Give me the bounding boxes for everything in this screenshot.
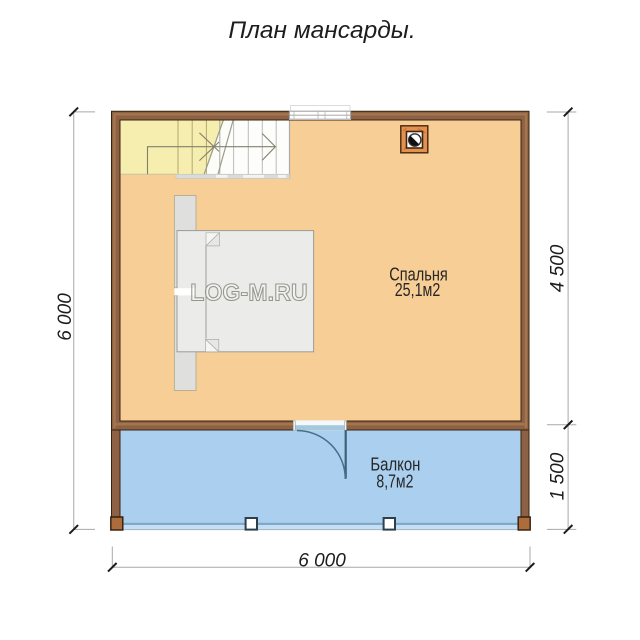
svg-text:6 000: 6 000 (298, 550, 346, 571)
svg-text:LOG-M.RU: LOG-M.RU (190, 280, 308, 307)
svg-text:8,7м2: 8,7м2 (376, 472, 413, 492)
svg-text:6 000: 6 000 (55, 293, 76, 341)
svg-text:План мансарды.: План мансарды. (228, 17, 415, 44)
svg-text:1 500: 1 500 (548, 452, 569, 500)
svg-text:25,1м2: 25,1м2 (395, 280, 441, 300)
svg-text:4 500: 4 500 (548, 244, 569, 292)
